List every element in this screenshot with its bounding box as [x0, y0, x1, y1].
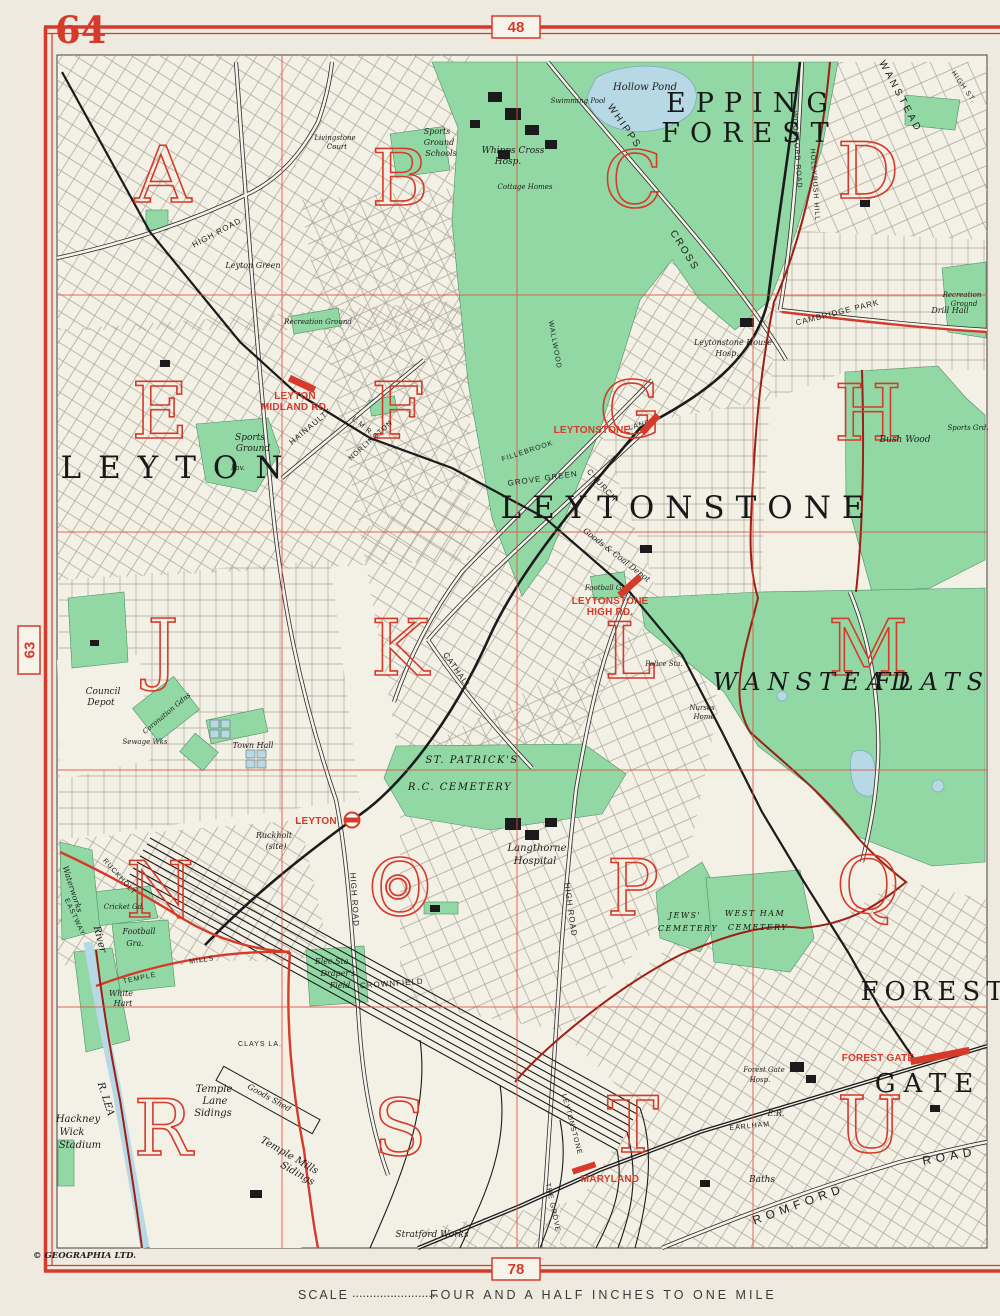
underground-roundel-bar — [344, 818, 360, 823]
label-drapers-2: Field — [329, 981, 351, 990]
label-leyton-green: Leyton Green — [224, 261, 280, 270]
label-temple-lane-3: Sidings — [194, 1108, 232, 1119]
label-sports-schools-3: Schools — [425, 149, 456, 158]
grid-letter-f: F — [371, 367, 425, 457]
grid-letter-t: T — [607, 1081, 659, 1171]
label-ruckholt-site-2: (site) — [266, 842, 287, 851]
grid-letter-b: B — [371, 134, 428, 224]
station-leytonstone-high-2: HIGH RD. — [587, 607, 634, 618]
map-canvas: A B C D E F G H J K L M N O P Q R S T U … — [0, 0, 1000, 1316]
grid-letter-r: R — [134, 1084, 195, 1174]
label-baths: Baths — [748, 1175, 775, 1185]
label-recreation-right-1: Recreation — [942, 291, 982, 299]
label-sports-ground-1: Sports — [235, 433, 265, 443]
page-number: 64 — [55, 8, 107, 52]
label-hackney-3: Stadium — [59, 1140, 101, 1151]
label-sewage-wks: Sewage Wks — [123, 738, 168, 746]
label-council-2: Depot — [86, 698, 115, 708]
street-atlas-page: A B C D E F G H J K L M N O P Q R S T U … — [0, 0, 1000, 1316]
label-white-hart-1: White — [109, 989, 133, 998]
label-st-patricks-1: ST. PATRICK'S — [425, 755, 518, 766]
label-langthorne-2: Hospital — [513, 856, 557, 867]
label-recreation-left: Recreation Ground — [283, 318, 352, 326]
grid-letter-s: S — [373, 1084, 426, 1174]
label-sports-grd: Sports Grd. — [947, 424, 988, 432]
label-sports-schools-2: Ground — [424, 138, 454, 147]
label-cricket-gd: Cricket Gd. — [104, 903, 145, 911]
grid-letter-h: H — [834, 369, 902, 459]
label-leytonstone-house-2: Hosp. — [714, 349, 739, 358]
label-hackney-2: Wick — [60, 1127, 85, 1138]
label-football-gra-2: Gra. — [126, 939, 144, 948]
grid-ref-bottom: 78 — [492, 1258, 540, 1280]
label-sports-ground-2: Ground — [236, 444, 271, 454]
label-forest-gate-2: GATE — [875, 1069, 981, 1099]
grid-letter-k: K — [371, 604, 431, 694]
label-temple-lane-2: Lane — [202, 1096, 228, 1107]
label-cottage-homes: Cottage Homes — [498, 183, 553, 191]
station-forest-gate: FOREST GATE — [842, 1053, 915, 1064]
label-drapers-1: Draper's — [320, 969, 356, 978]
label-stratford-works: Stratford Works — [395, 1230, 469, 1240]
station-leyton: LEYTON — [295, 816, 337, 827]
label-epping: EPPING — [666, 88, 838, 119]
label-livingstone-1: Livingstone — [313, 134, 355, 142]
label-jews-1: JEWS' — [667, 911, 701, 920]
grid-letter-a: A — [134, 131, 193, 221]
grid-ref-top-label: 48 — [508, 19, 525, 36]
label-langthorne-1: Langthorne — [506, 843, 566, 854]
station-leyton-midland-1: LEYTON — [274, 391, 316, 402]
label-sports-schools-1: Sports — [424, 127, 451, 136]
label-nurses-2: Home — [692, 713, 714, 721]
label-bush-wood: Bush Wood — [879, 435, 931, 445]
grid-letter-o: O — [368, 844, 432, 934]
label-west-ham-1: WEST HAM — [725, 909, 785, 918]
label-hackney-1: Hackney — [55, 1114, 101, 1125]
label-hollow-pond: Hollow Pond — [612, 82, 677, 93]
label-forest-gate-hosp-2: Hosp. — [749, 1076, 771, 1084]
scale-bar-text: SCALE ......................... FOUR AND… — [298, 1286, 777, 1302]
label-police-sta: Police Sta. — [644, 660, 682, 668]
scale-prefix: SCALE — [298, 1288, 349, 1302]
station-leytonstone: LEYTONSTONE — [554, 425, 631, 436]
copyright-notice: © GEOGRAPHIA LTD. — [33, 1251, 136, 1261]
grid-letter-d: D — [837, 127, 900, 217]
scale-text: FOUR AND A HALF INCHES TO ONE MILE — [430, 1288, 777, 1302]
label-forest-gate-hosp-1: Forest Gate — [742, 1066, 785, 1074]
label-livingstone-2: Court — [327, 143, 347, 151]
label-leytonstone-district: LEYTONSTONE — [501, 490, 876, 526]
station-leytonstone-high-1: LEYTONSTONE — [572, 596, 649, 607]
label-whipps-hosp-1: Whipps Cross — [482, 146, 545, 156]
scale-dots: ......................... — [352, 1286, 439, 1300]
label-west-ham-2: CEMETERY — [728, 923, 788, 932]
label-ruckholt-site-1: Ruckholt — [255, 831, 293, 840]
grid-letter-g: G — [599, 366, 661, 456]
grid-letter-c: C — [603, 136, 663, 226]
grid-ref-bottom-label: 78 — [508, 1261, 525, 1278]
label-white-hart-2: Hart — [113, 999, 134, 1008]
grid-letter-q: Q — [836, 841, 900, 931]
label-drill-hall: Drill Hall — [930, 306, 969, 315]
label-football-gra-1: Football — [122, 927, 156, 936]
label-forest-epping: FOREST — [661, 118, 838, 149]
label-town-hall: Town Hall — [233, 741, 274, 750]
label-st-patricks-2: R.C. CEMETERY — [407, 782, 512, 793]
grid-ref-left-label: 63 — [22, 642, 39, 659]
label-nurses-1: Nurses — [688, 704, 715, 712]
label-council-1: Council — [86, 687, 121, 697]
label-whipps-hosp-2: Hosp. — [494, 157, 522, 167]
label-swimming-pool: Swimming Pool — [551, 97, 606, 105]
label-pav: Pav. — [230, 464, 245, 472]
grid-letter-e: E — [132, 367, 189, 457]
station-leyton-midland-2: MIDLAND RD. — [261, 402, 329, 413]
label-er: E.R. — [767, 1109, 785, 1118]
label-wanstead-flats-2: FLATS — [873, 668, 990, 696]
grid-letter-l: L — [604, 607, 656, 697]
station-maryland: MARYLAND — [581, 1174, 639, 1185]
grid-letter-p: P — [607, 844, 659, 934]
grid-ref-top: 48 — [492, 16, 540, 38]
label-leytonstone-house-1: Leytonstone House — [693, 338, 772, 347]
label-forest-gate-1: FOREST — [860, 977, 1000, 1007]
label-leyton-district: LEYTON — [61, 450, 300, 486]
label-jews-2: CEMETERY — [658, 924, 718, 933]
label-temple-lane-1: Temple — [196, 1084, 233, 1095]
grid-ref-left: 63 — [18, 626, 40, 674]
label-elec-sta: Elec.Sta. — [314, 957, 351, 966]
road-clays-la: CLAYS LA. — [238, 1041, 282, 1048]
